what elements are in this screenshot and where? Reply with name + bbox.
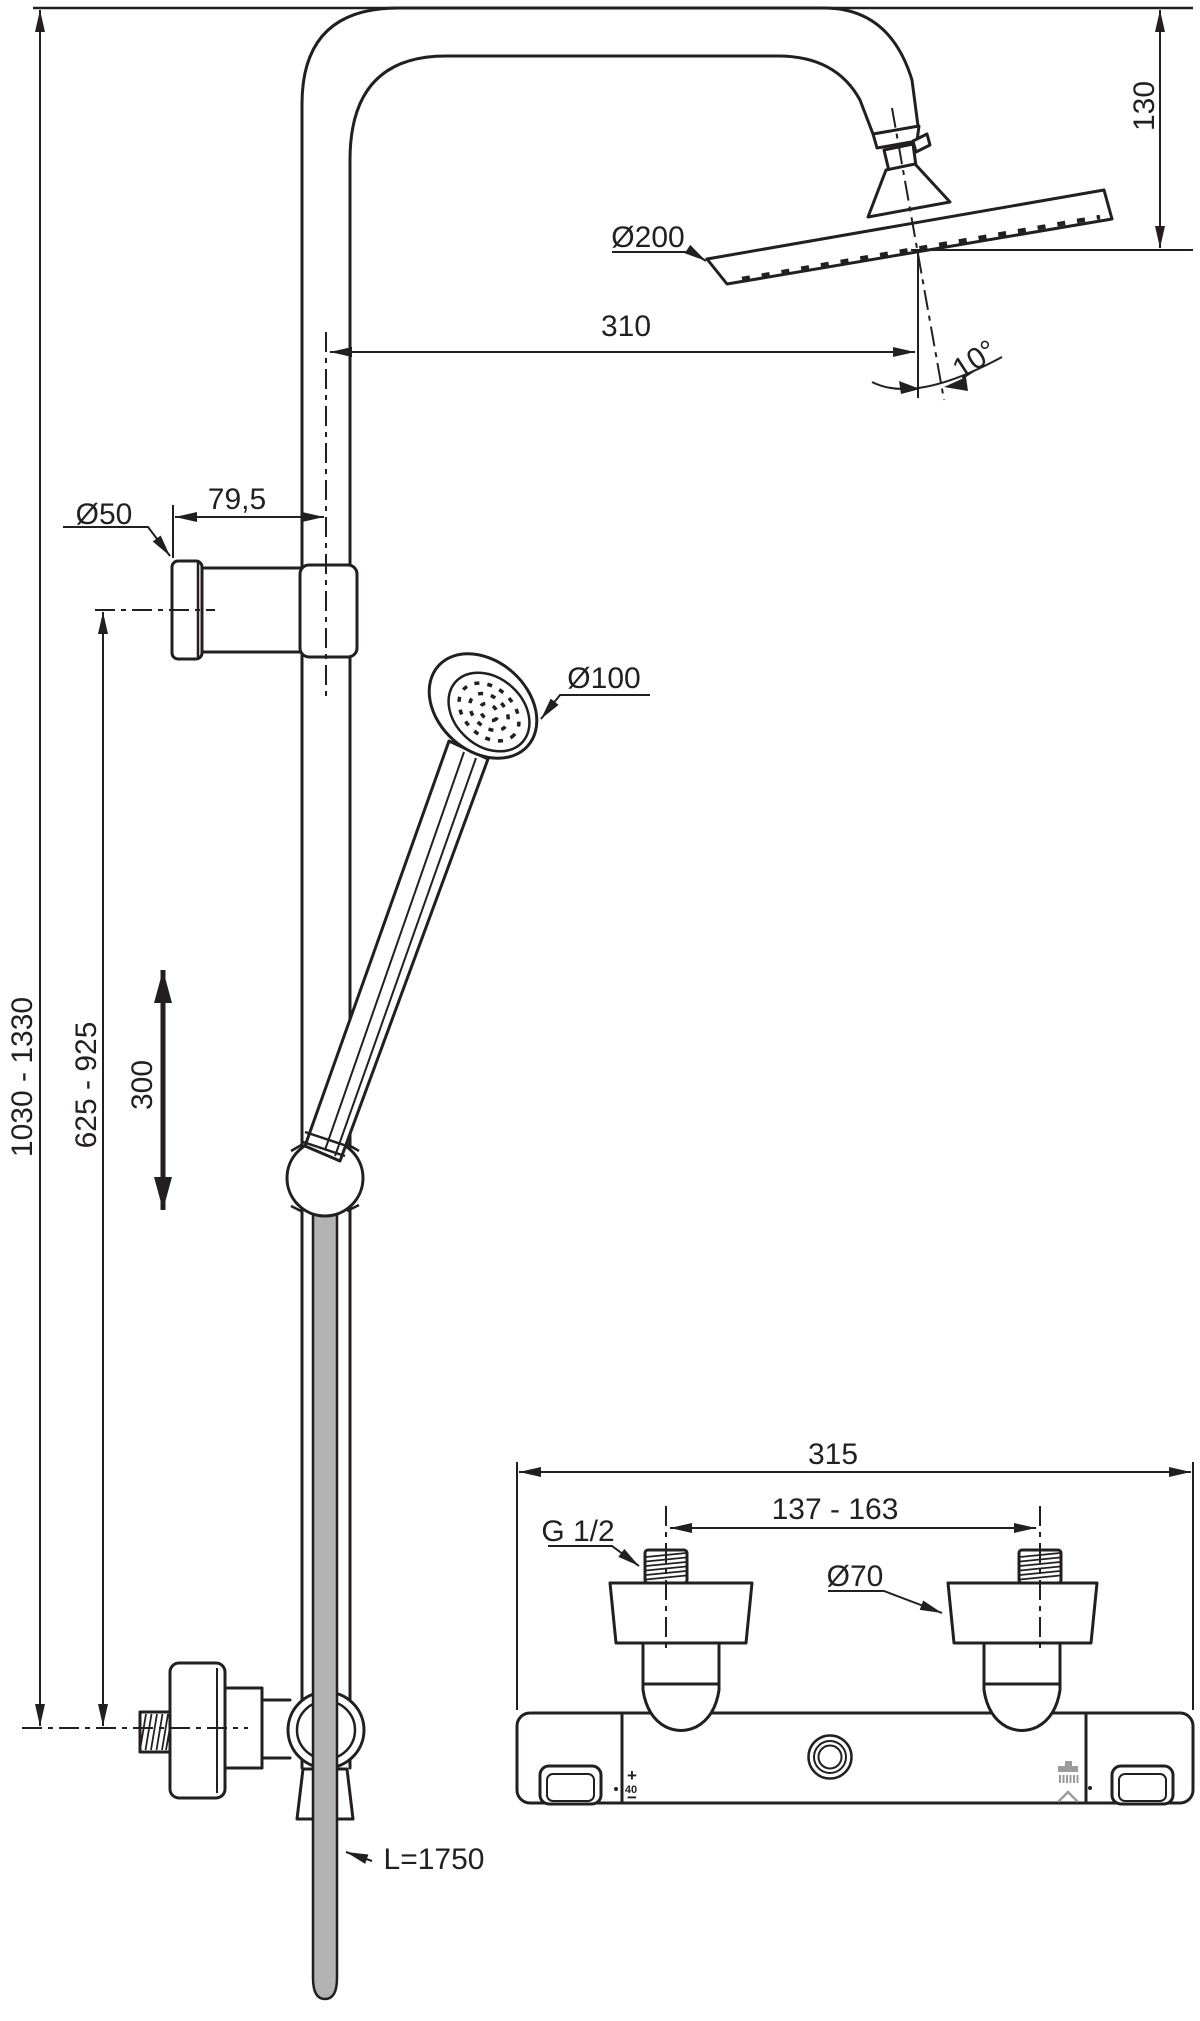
shower-hose — [313, 1190, 337, 1999]
flow-index-dot — [1088, 1786, 1092, 1790]
dim-arm-reach: 310 — [330, 310, 915, 352]
flow-handle-button — [1112, 1766, 1173, 1804]
temp-index-dot — [614, 1787, 618, 1791]
dim-mixer-width-label: 315 — [808, 1438, 858, 1471]
hand-shower — [303, 632, 558, 1161]
rosette-diameter-label: Ø70 — [827, 1560, 884, 1593]
left-escutcheon — [610, 1583, 752, 1643]
centerlines — [22, 8, 1193, 1728]
dim-inlet-spacing-label: 137 - 163 — [772, 1493, 899, 1526]
dim-hand-shower-height: 625 - 925 — [70, 612, 103, 1726]
dim-slide-travel-label: 300 — [126, 1060, 159, 1110]
label-inlet-thread: G 1/2 — [541, 1515, 639, 1566]
overhead-shower-connector — [868, 126, 950, 217]
dim-slide-travel: 300 — [126, 970, 163, 1210]
dim-overall-height: 1030 - 1330 — [6, 10, 40, 1726]
head-diameter-label: Ø200 — [611, 221, 684, 254]
dim-bracket-offset-label: 79,5 — [208, 483, 266, 516]
left-inlet-neck — [643, 1643, 719, 1684]
label-head-diameter: Ø200 — [611, 221, 706, 261]
dim-hand-shower-height-label: 625 - 925 — [70, 1022, 103, 1149]
label-hose-length: L=1750 — [346, 1843, 484, 1876]
shower-system-drawing: + 40 − 130 Ø200 310 — [0, 0, 1200, 2021]
right-inlet-neck — [984, 1643, 1060, 1684]
inlet-thread-label: G 1/2 — [541, 1515, 614, 1548]
dim-arm-reach-label: 310 — [601, 310, 651, 343]
bracket-diameter-label: Ø50 — [76, 498, 133, 531]
hose-length-label: L=1750 — [384, 1843, 485, 1876]
label-rosette-diameter: Ø70 — [827, 1560, 942, 1613]
hand-shower-diameter-label: Ø100 — [567, 662, 640, 695]
mixer-bar-body — [517, 1713, 1193, 1803]
temperature-handle-button — [540, 1766, 601, 1804]
dim-head-drop-label: 130 — [1128, 81, 1161, 131]
technical-drawing-canvas: + 40 − 130 Ø200 310 — [0, 0, 1200, 2021]
label-bracket-diameter: Ø50 — [63, 498, 170, 556]
dim-overall-height-label: 1030 - 1330 — [6, 997, 39, 1157]
label-hand-shower-diameter: Ø100 — [541, 662, 650, 719]
right-escutcheon — [948, 1583, 1097, 1643]
mixer-plus-mark: + — [627, 1766, 637, 1785]
mixer-minus-mark: − — [627, 1788, 637, 1807]
